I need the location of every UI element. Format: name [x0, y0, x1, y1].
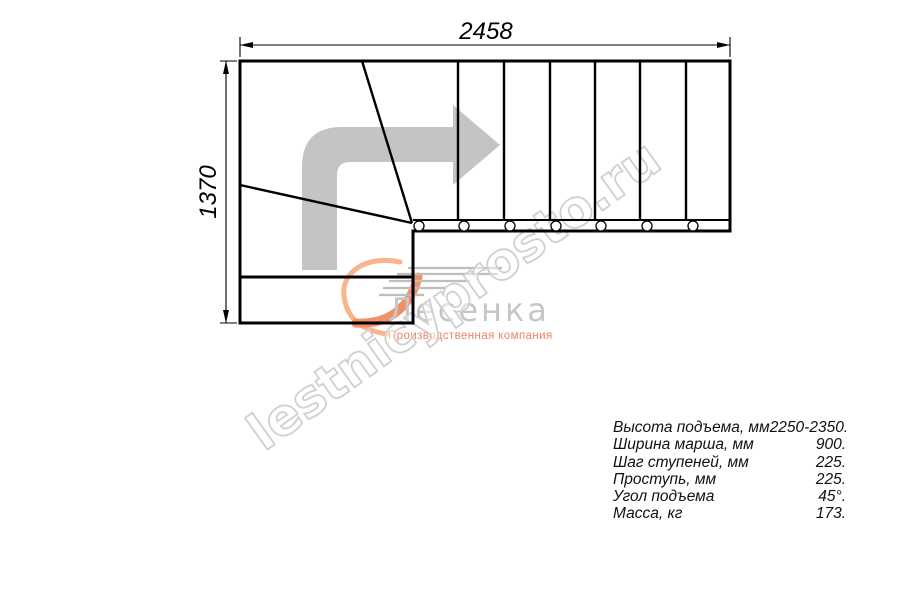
spec-label: Проступь, мм	[613, 471, 716, 488]
spec-row: Шаг ступеней, мм 225.	[613, 454, 846, 471]
spec-label: Ширина марша, мм	[613, 436, 754, 453]
spec-value: 225.	[816, 471, 846, 488]
spec-label: Шаг ступеней, мм	[613, 454, 749, 471]
dimension-height: 1370	[195, 61, 237, 323]
spec-value: 173.	[816, 505, 846, 522]
spec-row: Угол подъема 45°.	[613, 488, 846, 505]
specs-table: Высота подъема, мм 2250-2350. Ширина мар…	[613, 419, 846, 523]
dimension-width: 2458	[240, 18, 730, 57]
spec-value: 45°.	[818, 488, 846, 505]
dimension-width-label: 2458	[458, 18, 513, 45]
spec-row: Высота подъема, мм 2250-2350.	[613, 419, 846, 436]
dim-arrow-icon	[223, 61, 229, 74]
dim-arrow-icon	[240, 42, 253, 48]
spec-value: 2250-2350.	[770, 419, 848, 436]
spec-row: Проступь, мм 225.	[613, 471, 846, 488]
dim-arrow-icon	[223, 310, 229, 323]
stair-drawing-page: { "diagram": { "title_hint": "L-shaped s…	[0, 0, 900, 600]
drawing-canvas: Лесенка Производственная компания lestni…	[0, 0, 900, 600]
dimension-height-label: 1370	[195, 165, 222, 219]
spec-label: Масса, кг	[613, 505, 682, 522]
dim-arrow-icon	[717, 42, 730, 48]
spec-row: Ширина марша, мм 900.	[613, 436, 846, 453]
spec-row: Масса, кг 173.	[613, 505, 846, 522]
spec-label: Высота подъема, мм	[613, 419, 770, 436]
spec-label: Угол подъема	[613, 488, 714, 505]
spec-value: 900.	[816, 436, 846, 453]
spec-value: 225.	[816, 454, 846, 471]
